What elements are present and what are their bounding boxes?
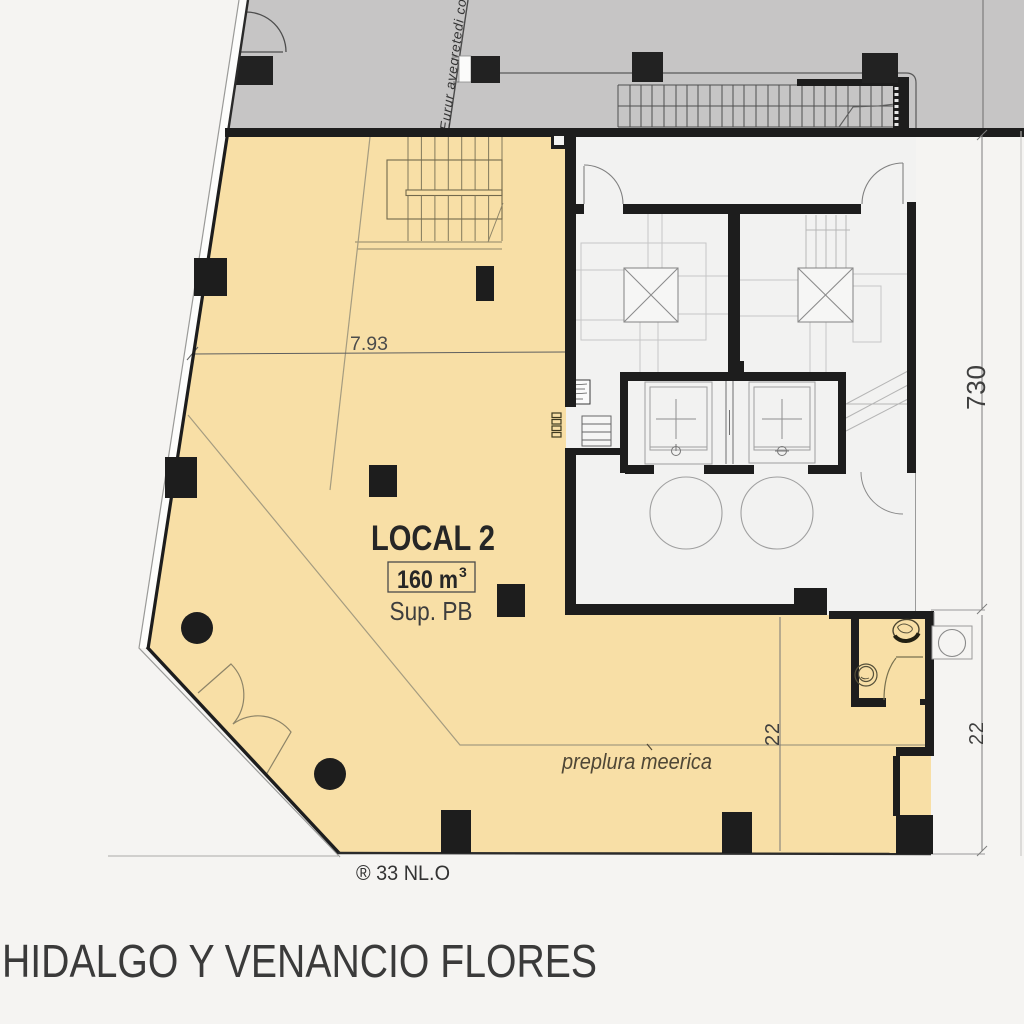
svg-text:HIDALGO Y VENANCIO FLORES: HIDALGO Y VENANCIO FLORES: [2, 935, 597, 987]
svg-text:22: 22: [966, 722, 988, 745]
svg-text:preplura meerica: preplura meerica: [561, 749, 712, 774]
svg-text:3: 3: [459, 564, 467, 580]
svg-text:160 m: 160 m: [397, 566, 458, 594]
svg-text:7.93: 7.93: [350, 334, 388, 355]
svg-text:730: 730: [961, 365, 991, 410]
svg-text:® 33 NL.O: ® 33 NL.O: [356, 862, 450, 885]
svg-text:LOCAL 2: LOCAL 2: [371, 519, 495, 558]
svg-text:Sup. PB: Sup. PB: [390, 596, 473, 626]
svg-text:22: 22: [762, 723, 784, 746]
